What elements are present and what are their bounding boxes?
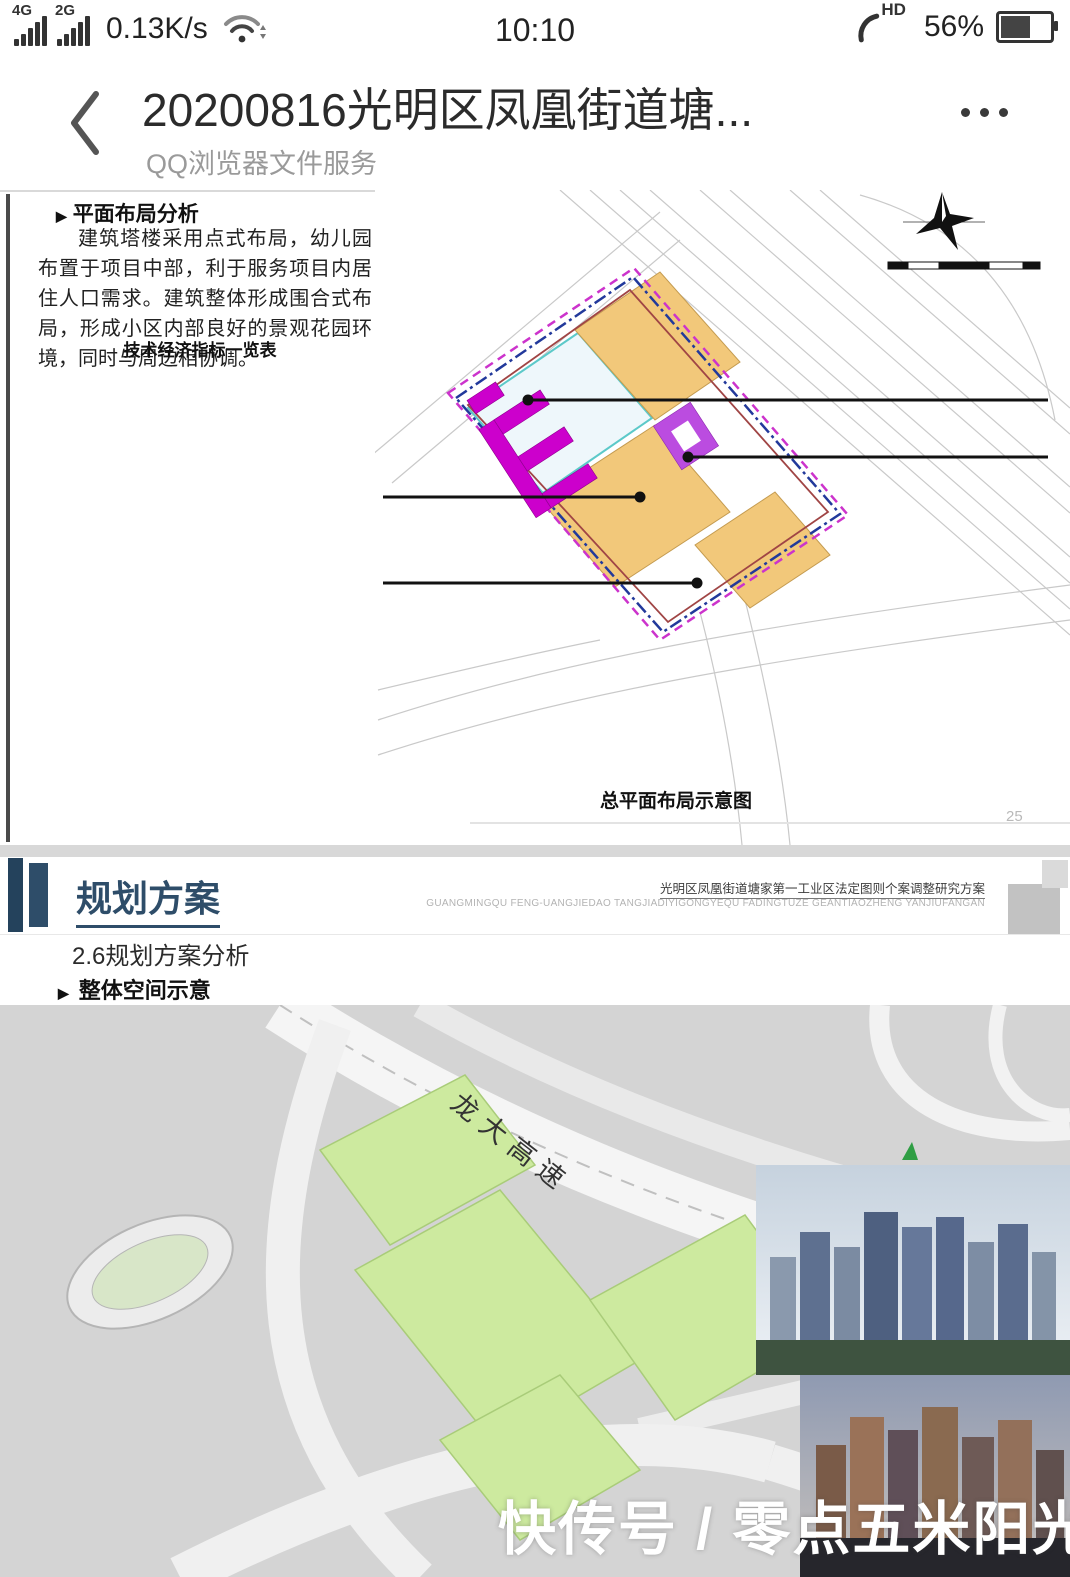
- battery-icon: [996, 11, 1054, 43]
- arrow-bullet-icon: ▶: [56, 208, 67, 224]
- header-rule: [0, 934, 1070, 935]
- arrow-bullet-icon: ▶: [58, 985, 69, 1001]
- watermark: 快传号 / 零点五米阳光: [498, 1482, 1070, 1566]
- page-edge: [6, 194, 10, 842]
- site-plan-map: [375, 190, 1070, 845]
- page-number: 25: [1006, 808, 1023, 825]
- status-bar: 4G 2G 0.13K/s 10:10: [0, 0, 1070, 60]
- more-menu-button[interactable]: [961, 108, 1008, 117]
- project-title-cn: 光明区凤凰街道塘家第一工业区法定图则个案调整研究方案: [660, 878, 985, 899]
- map-caption: 总平面布局示意图: [600, 786, 860, 813]
- phone-screen: 4G 2G 0.13K/s 10:10: [0, 0, 1070, 1577]
- rendering-photo-day: [756, 1165, 1070, 1375]
- section-title: 规划方案: [76, 870, 220, 928]
- hd-call-icon: HD: [851, 8, 912, 46]
- scale-bar: [888, 262, 1040, 269]
- hd-label: HD: [881, 0, 906, 38]
- header-accent-bar: [29, 863, 48, 927]
- document-source: QQ浏览器文件服务: [146, 142, 377, 181]
- sub-heading: 2.6规划方案分析: [72, 936, 249, 971]
- document-title: 20200816光明区凤凰街道塘...: [142, 74, 882, 140]
- nav-bar: 20200816光明区凤凰街道塘... QQ浏览器文件服务: [0, 60, 1070, 190]
- project-title-en: GUANGMINGQU FENG-UANGJIEDAO TANGJIADIYIG…: [426, 898, 985, 909]
- header-decor-square: [1042, 860, 1068, 888]
- bullet-heading: ▶整体空间示意: [58, 973, 211, 1005]
- table-title: 技术经济指标一览表: [30, 336, 370, 361]
- header-accent-bar: [8, 858, 23, 932]
- battery-percent: 56%: [924, 10, 984, 44]
- footer-rule: [470, 822, 1070, 824]
- back-button[interactable]: [66, 88, 106, 158]
- page-gap: [0, 845, 1070, 857]
- header-decor-square: [1008, 884, 1060, 934]
